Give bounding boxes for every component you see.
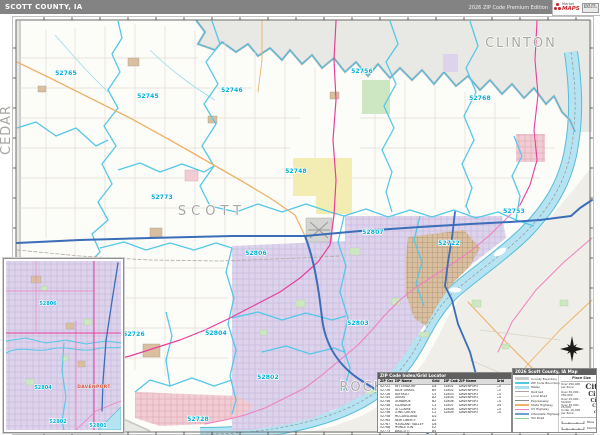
- legend-line-label: County Boundary: [531, 377, 557, 381]
- mccausland-area: [443, 54, 458, 72]
- km-scale-bar: [561, 425, 585, 431]
- legend-line-swatch: [515, 409, 529, 410]
- column-header: ZIP Code: [444, 379, 458, 384]
- place-size-sample: City: [592, 404, 597, 409]
- place-size-range: Under 10,000 per Zone: [561, 409, 582, 415]
- zip-label: 52728: [187, 416, 209, 423]
- table-cell: WALCOTT: [395, 430, 431, 433]
- legend-line-swatch: [515, 396, 529, 397]
- maysville-area: [185, 170, 198, 181]
- table-cell: B4: [432, 430, 442, 433]
- zip-label: 52748: [285, 168, 307, 175]
- logo-badge: 2026 ZIP Reference: [582, 3, 599, 13]
- table-cell: [497, 430, 507, 433]
- zip-label: 52765: [55, 70, 77, 77]
- inset-canvas: 52806528045280252801DAVENPORT: [6, 261, 121, 430]
- county-label: SCOTT: [178, 204, 246, 219]
- county-label: CLINTON: [485, 36, 557, 51]
- zip-index-table: ZIP Code Index/Grid Locator ZIP CodeZIP …: [377, 372, 512, 433]
- legend-line-label: State Highway: [531, 403, 553, 407]
- zip-label: 52726: [123, 331, 145, 338]
- zip-label: 52756: [351, 68, 373, 75]
- column-header: ZIP Name: [395, 379, 431, 384]
- inset-zip-label: 52801: [89, 423, 107, 429]
- scale-bars: Miles Kilometers: [561, 417, 597, 431]
- column-header: ZIP Name: [459, 379, 495, 384]
- legend-line-swatch: [515, 418, 529, 419]
- place-size-sample: City: [585, 382, 597, 391]
- column-header: ZIP Code: [380, 379, 393, 384]
- legend-line-label: Water: [531, 385, 540, 389]
- legend-line-swatch: [515, 382, 529, 384]
- place-size-sample: City: [594, 410, 597, 414]
- publisher-logo: Market MAPS 2026 ZIP Reference: [552, 0, 600, 16]
- place-size-sample: City: [588, 391, 597, 398]
- legend-line-swatch: [515, 400, 529, 401]
- zip-label: 52773: [151, 194, 173, 201]
- legend-line-label: ZIP Code Boundary: [531, 381, 560, 385]
- legend-line-swatch: [515, 413, 529, 415]
- legend-line-swatch: [515, 404, 529, 405]
- zip-label: 52722: [438, 240, 460, 247]
- legend-line-swatch: [515, 377, 529, 380]
- legend-line-swatch: [515, 391, 529, 392]
- inset-zip-label: 52804: [34, 385, 52, 391]
- zip-label: 52746: [221, 87, 243, 94]
- logo-brand-bottom: MAPS: [562, 7, 580, 13]
- zip-label: 52806: [245, 250, 267, 257]
- legend-line-label: Local Road: [531, 394, 547, 398]
- title-bar: SCOTT COUNTY, IA 2026 ZIP Code Premium E…: [0, 0, 600, 14]
- place-size-sample: City: [590, 398, 597, 404]
- zip-label: 52804: [205, 330, 227, 337]
- zip-label: 52807: [362, 229, 384, 236]
- table-cell: [444, 430, 458, 433]
- zip-label: 52753: [503, 208, 525, 215]
- legend-place-size: Place Size Over 250,000 per ZoneCityOver…: [559, 375, 597, 433]
- table-cell: 52773: [380, 430, 393, 433]
- map-legend: 2026 Scott County, IA Map County Boundar…: [512, 368, 597, 433]
- map-page: SCOTTCLINTONROCK ISLANDCEDAR 52765527455…: [0, 0, 600, 435]
- inset-city-label: DAVENPORT: [77, 384, 111, 390]
- zip-label: 52745: [137, 93, 159, 100]
- edition-label: 2026 ZIP Code Premium Edition: [469, 5, 548, 11]
- miles-label: Miles: [587, 420, 594, 424]
- place-size-row: Under 10,000 per ZoneCity: [561, 409, 597, 415]
- county-label: CEDAR: [0, 105, 14, 155]
- zip-label: 52803: [347, 320, 369, 327]
- airport: [306, 218, 332, 242]
- legend-line-row: Toll Road: [515, 416, 556, 420]
- table-row: 52773WALCOTTB4: [378, 430, 511, 433]
- inset-zip-label: 52806: [39, 301, 57, 307]
- inset-zip-label: 52802: [49, 419, 67, 425]
- legend-line-label: Interstate Highway: [531, 412, 560, 416]
- place-size-range: Over 250,000 per Zone: [561, 383, 582, 389]
- legend-line-label: Railroad: [531, 390, 543, 394]
- legend-line-label: US Highway: [531, 407, 549, 411]
- zip-label: 52802: [257, 374, 279, 381]
- column-header: Grid: [432, 379, 442, 384]
- legend-line-label: Toll Road: [531, 416, 544, 420]
- map-title: SCOTT COUNTY, IA: [5, 3, 83, 11]
- kilometers-label: Kilometers: [587, 426, 597, 430]
- column-header: Grid: [497, 379, 507, 384]
- zip-label: 52768: [469, 95, 491, 102]
- logo-dots-icon: [554, 3, 561, 13]
- legend-line-samples: County BoundaryZIP Code BoundaryWaterRai…: [513, 375, 559, 433]
- table-cell: [459, 430, 495, 433]
- legend-line-swatch: [515, 386, 529, 389]
- legend-line-label: Expressway: [531, 399, 549, 403]
- zip-table-body: 52722BETTENDORFD452801DAVENPORTC452726BL…: [378, 385, 511, 433]
- downtown-inset-map: 52806528045280252801DAVENPORT: [3, 258, 124, 433]
